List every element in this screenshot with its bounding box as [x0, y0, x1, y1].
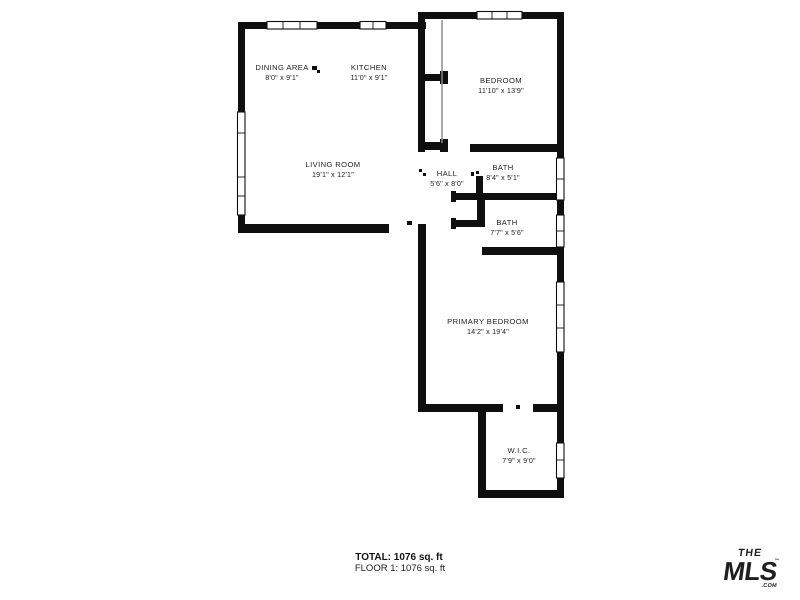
fixture-mark	[312, 66, 317, 70]
mls-logo-tm-mark: ™	[773, 558, 779, 564]
floor-plan-svg: DINING AREA 8'0" x 9'1" KITCHEN 11'0" x …	[0, 0, 800, 600]
wall-bath2-bottom	[482, 247, 564, 255]
wall-closet-cap-top	[440, 71, 448, 84]
window-symbol	[557, 215, 565, 247]
total-sqft-text: TOTAL: 1076 sq. ft	[355, 552, 443, 563]
room-dims-kitchen: 11'0" x 9'1"	[350, 73, 388, 82]
door-jamb-tick	[407, 221, 412, 225]
door-jamb-tick	[419, 169, 422, 172]
mls-logo-mls-text: MLS	[721, 556, 779, 586]
mls-logo-com-text: .COM	[761, 583, 777, 589]
window-symbol	[557, 443, 565, 478]
room-label-dining-area: DINING AREA	[255, 63, 309, 72]
footer-totals: TOTAL: 1076 sq. ft FLOOR 1: 1076 sq. ft	[355, 552, 446, 574]
room-label-living-room: LIVING ROOM	[305, 160, 360, 169]
wall-bath-divider	[453, 193, 564, 200]
room-label-kitchen: KITCHEN	[351, 63, 387, 72]
room-label-bath-2: BATH	[496, 218, 517, 227]
wall-primary-left	[418, 224, 426, 412]
window-symbol	[267, 22, 317, 30]
wall-kitchen-bedroom	[418, 12, 425, 152]
window-symbol	[360, 22, 386, 30]
window-symbol	[557, 282, 565, 352]
fixture-mark	[317, 70, 320, 73]
wall-linen-closet-cap	[451, 218, 456, 229]
door-jamb-tick	[471, 172, 474, 176]
floor-plan-canvas: DINING AREA 8'0" x 9'1" KITCHEN 11'0" x …	[0, 0, 800, 600]
wall-closet-stub-top	[425, 74, 442, 81]
wall-top-left-section	[238, 22, 426, 29]
room-label-primary-bedroom: PRIMARY BEDROOM	[447, 317, 529, 326]
room-dims-dining-area: 8'0" x 9'1"	[265, 73, 299, 82]
door-jamb-tick	[516, 405, 520, 409]
room-dims-bath-1: 8'4" x 5'1"	[486, 173, 520, 182]
room-dims-bedroom: 11'10" x 13'9"	[478, 86, 524, 95]
room-dims-living-room: 19'1" x 12'1"	[312, 170, 354, 179]
window-symbol	[477, 12, 522, 20]
wall-primary-bottom-left	[418, 404, 503, 412]
room-label-hall: HALL	[437, 169, 458, 178]
door-ticks	[312, 66, 520, 409]
window-symbol	[238, 112, 246, 215]
door-jamb-tick	[476, 171, 479, 174]
room-dims-hall: 5'6" x 8'0"	[430, 179, 464, 188]
floor-sqft-text: FLOOR 1: 1076 sq. ft	[355, 563, 446, 574]
wall-closet-cap-bottom	[440, 139, 448, 152]
door-jamb-tick	[423, 173, 426, 176]
room-label-wic: W.I.C.	[507, 446, 530, 455]
wall-wic-left	[478, 412, 486, 497]
room-label-bath-1: BATH	[492, 163, 513, 172]
wall-primary-bottom-right	[533, 404, 564, 412]
room-dims-primary-bedroom: 14'2" x 19'4"	[467, 327, 509, 336]
wall-bath-divider-cap	[451, 191, 456, 202]
window-symbol	[557, 158, 565, 200]
wall-wic-bottom	[478, 490, 564, 498]
room-dims-wic: 7'9" x 9'0"	[502, 456, 536, 465]
wall-closet-stub-bottom	[418, 142, 441, 150]
wall-living-bottom	[238, 224, 389, 233]
room-dims-bath-2: 7'7" x 5'6"	[490, 228, 524, 237]
mls-logo: THE MLS ™ .COM	[721, 547, 783, 589]
wall-bedroom-bottom	[470, 144, 564, 152]
wall-linen-closet-bottom	[453, 220, 485, 227]
room-label-bedroom: BEDROOM	[480, 76, 522, 85]
